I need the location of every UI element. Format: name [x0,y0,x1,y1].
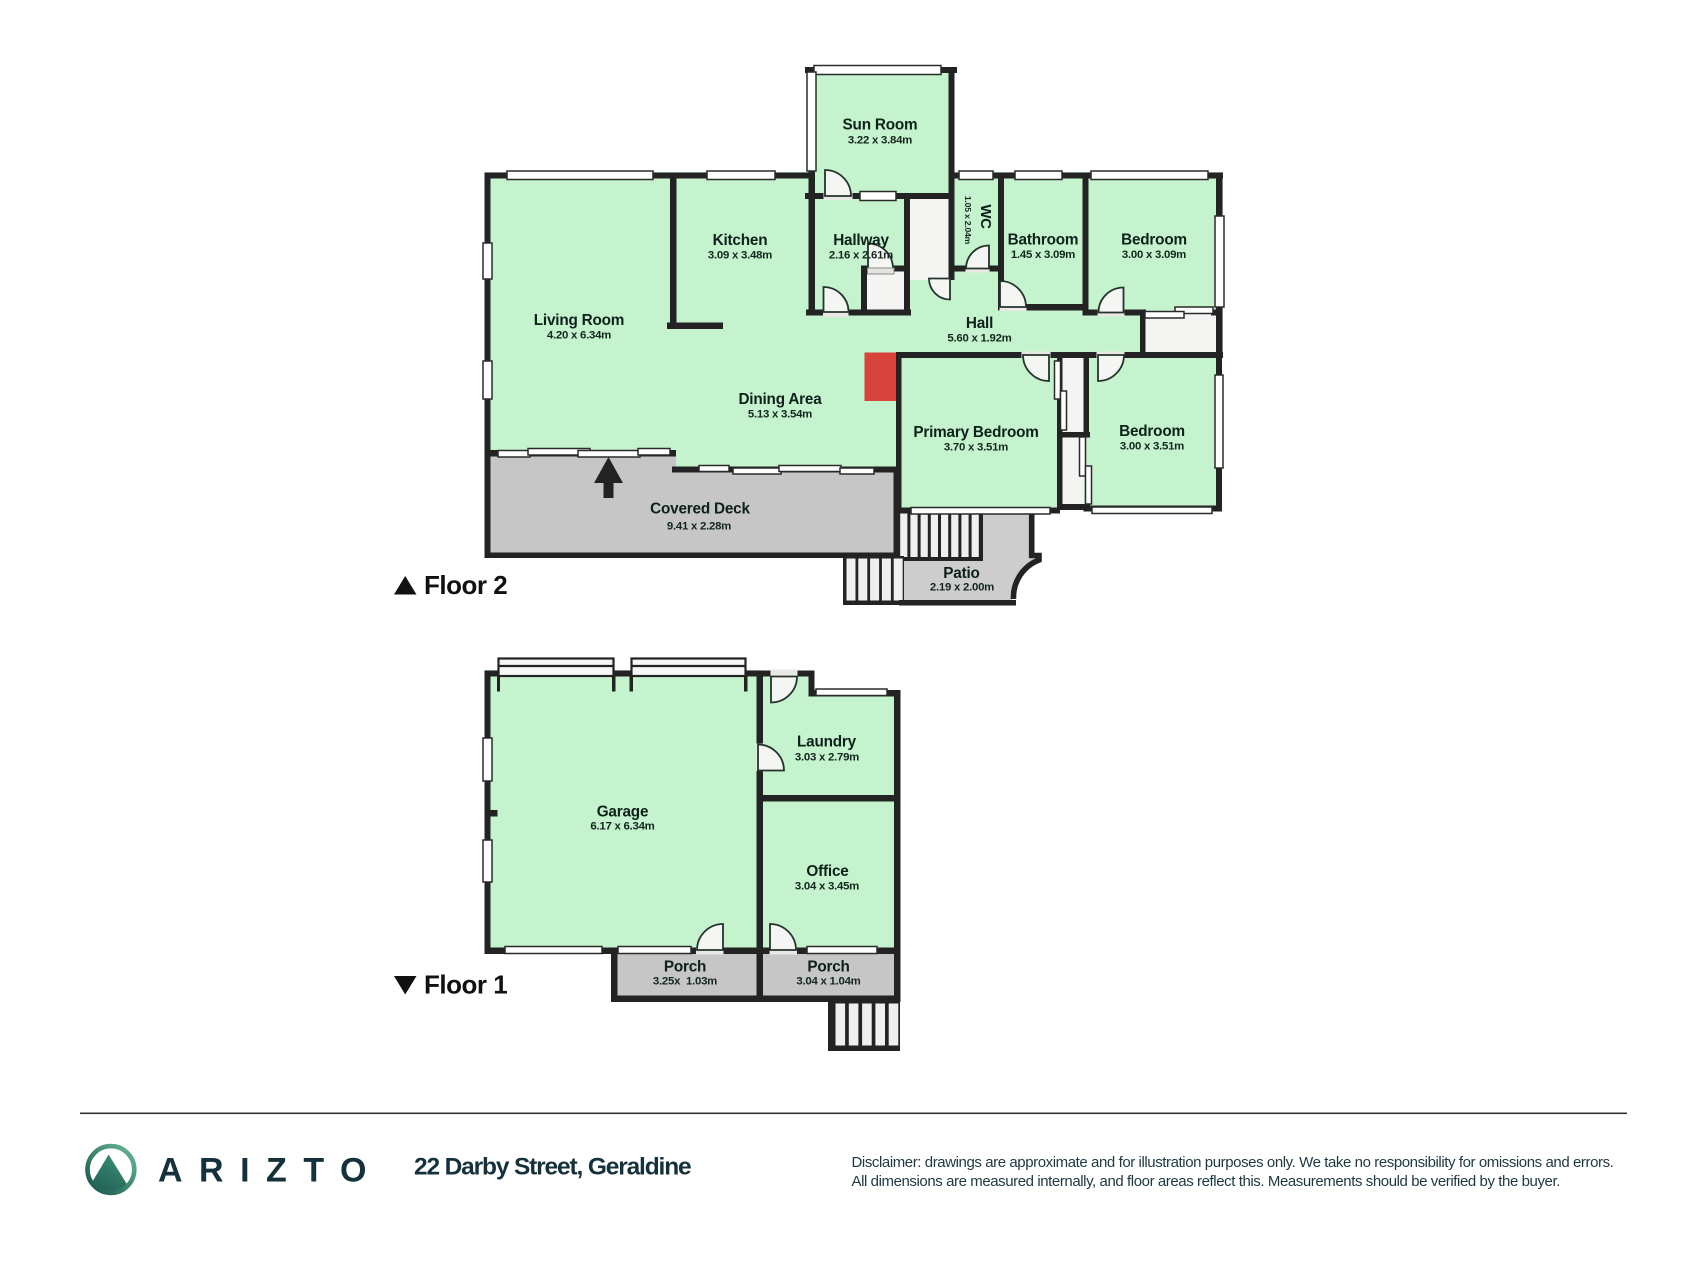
svg-text:3.09 x 3.48m: 3.09 x 3.48m [708,250,772,262]
svg-text:Porch: Porch [664,959,706,976]
svg-text:3.25x 1.03m: 3.25x 1.03m [653,976,717,988]
svg-text:Dining Area: Dining Area [738,391,822,408]
svg-text:9.41 x 2.28m: 9.41 x 2.28m [667,521,731,533]
svg-text:3.04 x 3.45m: 3.04 x 3.45m [795,881,859,893]
svg-text:Garage: Garage [597,804,649,821]
svg-text:5.13 x 3.54m: 5.13 x 3.54m [748,409,812,421]
svg-text:Disclaimer: drawings are appro: Disclaimer: drawings are approximate and… [852,1154,1614,1171]
svg-text:22 Darby Street, Geraldine: 22 Darby Street, Geraldine [414,1154,691,1181]
svg-text:5.60 x 1.92m: 5.60 x 1.92m [947,333,1011,345]
svg-text:Primary Bedroom: Primary Bedroom [913,424,1038,441]
svg-text:3.00 x 3.51m: 3.00 x 3.51m [1120,441,1184,453]
svg-text:Floor 2: Floor 2 [424,570,507,600]
svg-text:4.20 x 6.34m: 4.20 x 6.34m [547,330,611,342]
svg-text:6.17 x 6.34m: 6.17 x 6.34m [590,821,654,833]
svg-text:3.00 x 3.09m: 3.00 x 3.09m [1122,249,1186,261]
svg-text:2.19 x 2.00m: 2.19 x 2.00m [930,582,994,594]
svg-text:Living Room: Living Room [534,312,624,329]
svg-text:3.03 x 2.79m: 3.03 x 2.79m [795,752,859,764]
svg-text:WC: WC [977,204,994,229]
svg-text:2.16 x 2.61m: 2.16 x 2.61m [829,250,893,262]
svg-text:Bedroom: Bedroom [1119,423,1185,440]
svg-text:Sun Room: Sun Room [843,117,918,134]
svg-text:3.70 x 3.51m: 3.70 x 3.51m [944,442,1008,454]
svg-text:3.22 x 3.84m: 3.22 x 3.84m [848,135,912,147]
svg-text:Kitchen: Kitchen [713,232,768,249]
svg-text:3.04 x 1.04m: 3.04 x 1.04m [796,976,860,988]
svg-text:All dimensions are measured in: All dimensions are measured internally, … [852,1173,1560,1190]
svg-text:Porch: Porch [807,959,849,976]
svg-text:Laundry: Laundry [797,734,857,751]
svg-text:1.05 x 2.04m: 1.05 x 2.04m [963,196,973,245]
svg-text:Hallway: Hallway [833,232,889,249]
svg-text:1.45 x 3.09m: 1.45 x 3.09m [1011,249,1075,261]
svg-text:Floor 1: Floor 1 [424,970,507,1000]
svg-text:Covered Deck: Covered Deck [650,501,750,518]
svg-text:Hall: Hall [966,315,993,332]
svg-text:Patio: Patio [943,565,979,582]
svg-text:Bedroom: Bedroom [1121,232,1187,249]
svg-text:Bathroom: Bathroom [1008,232,1079,249]
svg-text:Office: Office [806,863,848,880]
svg-text:ARIZTO: ARIZTO [158,1152,383,1190]
